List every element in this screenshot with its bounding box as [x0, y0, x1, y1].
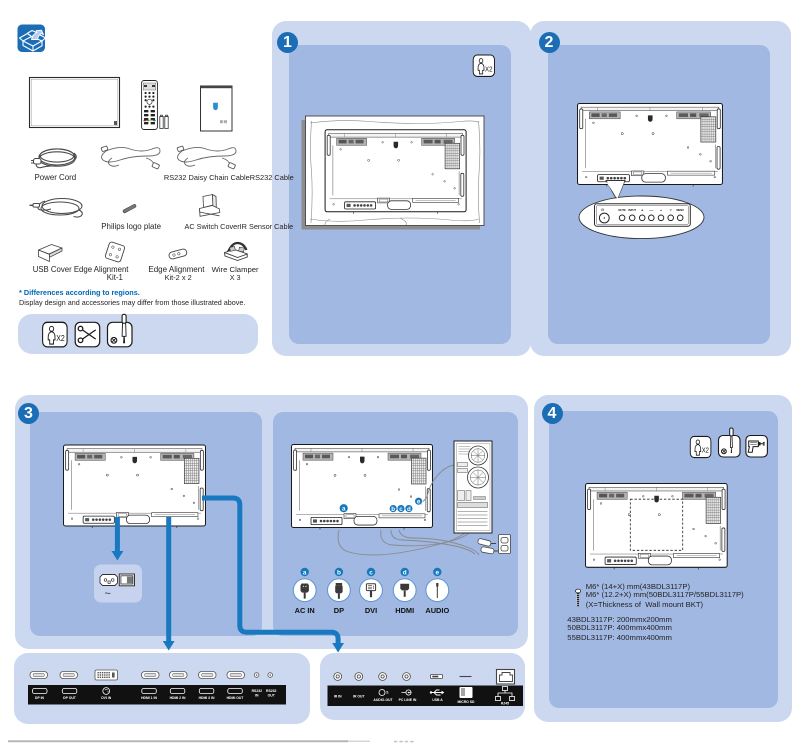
svg-text:e: e	[436, 570, 440, 577]
svg-text:HDMI OUT: HDMI OUT	[227, 696, 245, 700]
svg-text:DP: DP	[334, 606, 344, 615]
svg-text:e: e	[417, 499, 421, 506]
svg-text:HDMI 2 IN: HDMI 2 IN	[170, 696, 186, 700]
svg-text:IN: IN	[255, 694, 259, 698]
svg-text:HDMI 3 IN: HDMI 3 IN	[199, 696, 215, 700]
svg-text:c: c	[369, 570, 373, 577]
svg-text:HDMI: HDMI	[395, 606, 414, 615]
svg-text:a: a	[342, 506, 346, 513]
svg-text:IR OUT: IR OUT	[353, 695, 365, 699]
svg-text:MENU: MENU	[676, 208, 684, 212]
svg-text:USB A: USB A	[432, 698, 443, 702]
svg-text:DVI IN: DVI IN	[101, 696, 112, 700]
svg-text:b: b	[337, 570, 341, 577]
svg-text:RS232: RS232	[266, 689, 276, 693]
svg-text:DVI: DVI	[365, 606, 377, 615]
svg-text:~: ~	[105, 588, 111, 600]
svg-text:INPUT: INPUT	[628, 208, 636, 212]
svg-text:PC LINE IN: PC LINE IN	[399, 698, 417, 702]
svg-text:RJ45: RJ45	[501, 702, 509, 706]
svg-text:MUTE: MUTE	[618, 208, 626, 212]
svg-text:AUDIO: AUDIO	[425, 606, 449, 615]
svg-text:⏻: ⏻	[601, 208, 604, 212]
svg-text:DP IN: DP IN	[35, 696, 45, 700]
svg-text:d: d	[403, 570, 407, 577]
svg-text:—: —	[649, 208, 653, 213]
svg-text:HDMI 1 IN: HDMI 1 IN	[141, 696, 157, 700]
svg-text:d: d	[407, 506, 411, 513]
svg-text:AUDIO-OUT: AUDIO-OUT	[373, 698, 393, 702]
svg-text:AC IN: AC IN	[295, 606, 315, 615]
svg-text:▲: ▲	[660, 209, 663, 212]
svg-text:IR IN: IR IN	[334, 695, 342, 699]
svg-text:RS232: RS232	[252, 689, 262, 693]
svg-text:OUT: OUT	[268, 694, 276, 698]
svg-text:a: a	[303, 570, 307, 577]
svg-text:MICRO SD: MICRO SD	[458, 700, 476, 704]
svg-text:b: b	[391, 506, 395, 513]
svg-text:DP OUT: DP OUT	[63, 696, 77, 700]
svg-text:c: c	[399, 506, 403, 513]
